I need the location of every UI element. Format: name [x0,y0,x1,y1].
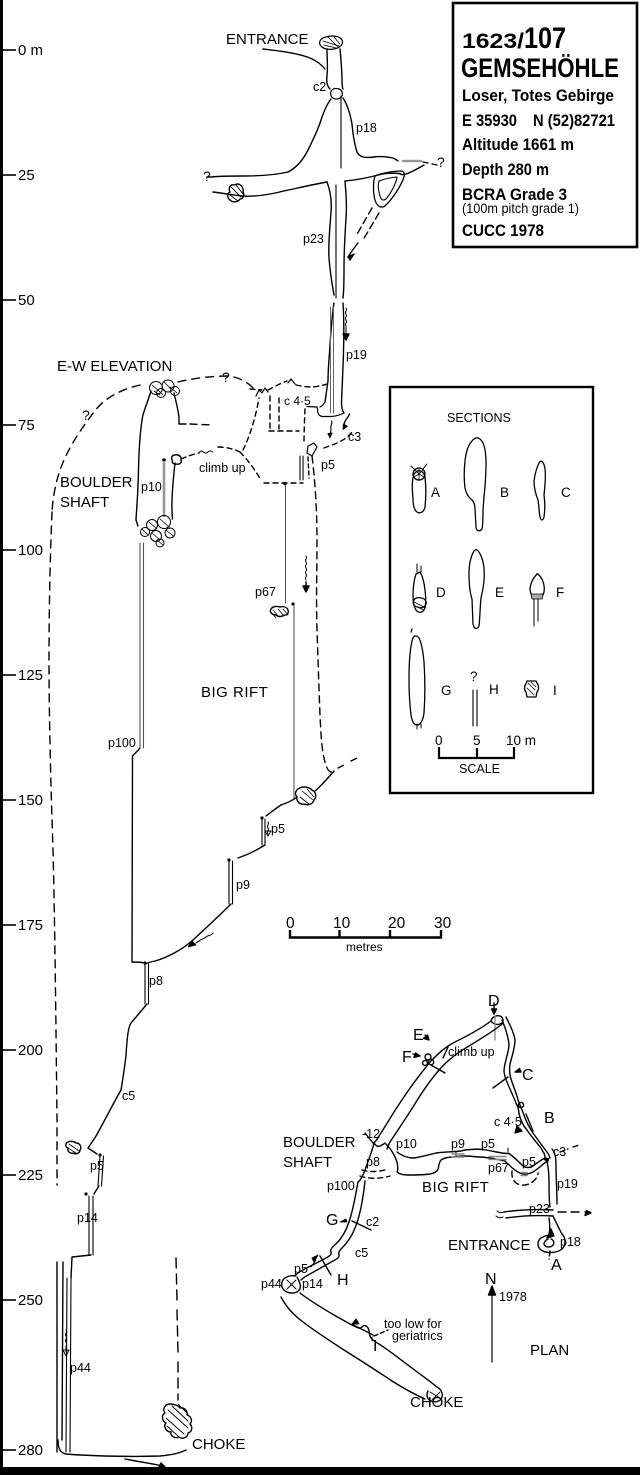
svg-text:p18: p18 [356,121,377,135]
svg-text:c 4·5: c 4·5 [284,394,311,408]
svg-text:p5: p5 [90,1159,104,1173]
svg-text:50: 50 [18,292,35,309]
svg-text:BOULDER: BOULDER [60,474,133,491]
svg-text:SCALE: SCALE [459,762,500,776]
svg-text:0 m: 0 m [18,42,43,59]
svg-text:C: C [561,485,571,500]
svg-text:F: F [556,585,564,600]
svg-text:p19: p19 [557,1177,578,1191]
svg-text:p100: p100 [327,1179,355,1193]
svg-text:100: 100 [18,542,43,559]
svg-text:D: D [436,585,446,600]
svg-text:?: ? [222,369,230,385]
svg-text:p10: p10 [396,1137,417,1151]
svg-text:BOULDER: BOULDER [283,1134,356,1151]
svg-text:GEMSEHÖHLE: GEMSEHÖHLE [461,53,619,83]
svg-text:B: B [500,485,509,500]
svg-text:p44: p44 [261,1277,282,1291]
svg-text:75: 75 [18,417,35,434]
svg-text:E: E [413,1027,424,1044]
svg-text:c5: c5 [355,1246,368,1260]
svg-text:SHAFT: SHAFT [283,1154,332,1171]
svg-text:p19: p19 [346,348,367,362]
svg-text:H: H [337,1272,349,1289]
svg-text:I: I [553,683,557,698]
svg-text:climb up: climb up [199,461,246,475]
svg-text:G: G [326,1212,338,1229]
svg-text:Loser, Totes Gebirge: Loser, Totes Gebirge [462,86,614,105]
svg-text:ENTRANCE: ENTRANCE [448,1237,531,1254]
svg-text:Altitude 1661 m: Altitude 1661 m [462,136,574,154]
svg-text:p44: p44 [70,1361,91,1375]
svg-text:?: ? [470,669,478,684]
svg-text:BIG RIFT: BIG RIFT [201,684,268,701]
svg-text:5: 5 [473,733,481,748]
svg-text:p67: p67 [255,585,276,599]
svg-text:C: C [522,1067,534,1084]
svg-text:c2: c2 [313,80,326,94]
svg-text:?: ? [203,168,211,184]
svg-text:107: 107 [524,22,566,55]
svg-text:A: A [431,485,440,500]
svg-text:SHAFT: SHAFT [60,494,109,511]
svg-text:?: ? [437,154,445,170]
svg-text:10 m: 10 m [506,733,536,748]
svg-text:125: 125 [18,667,43,684]
svg-text:(100m pitch grade 1): (100m pitch grade 1) [462,200,579,216]
svg-text:280: 280 [18,1442,43,1459]
svg-text:200: 200 [18,1042,43,1059]
svg-text:p14: p14 [302,1277,323,1291]
svg-text:N: N [485,1271,497,1288]
svg-text:p9: p9 [451,1137,465,1151]
svg-text:p5: p5 [321,458,335,472]
svg-text:?: ? [82,407,90,423]
svg-text:climb up: climb up [448,1045,495,1059]
svg-text:c3: c3 [348,430,361,444]
svg-text:H: H [489,682,499,697]
svg-text:10: 10 [333,915,351,932]
svg-text:CHOKE: CHOKE [410,1394,463,1411]
svg-text:SECTIONS: SECTIONS [447,411,511,425]
svg-text:BIG RIFT: BIG RIFT [422,1179,489,1196]
svg-text:25: 25 [18,167,35,184]
svg-text:p100: p100 [108,736,136,750]
svg-text:c2: c2 [366,1215,379,1229]
svg-text:p5: p5 [271,822,285,836]
svg-text:geriatrics: geriatrics [392,1329,443,1343]
svg-text:p14: p14 [77,1211,98,1225]
svg-text:PLAN: PLAN [530,1342,569,1359]
svg-text:F: F [402,1049,412,1066]
svg-text:225: 225 [18,1167,43,1184]
svg-text:p8: p8 [149,974,163,988]
svg-text:p67: p67 [488,1161,509,1175]
svg-text:B: B [544,1110,555,1127]
svg-text:p9: p9 [236,878,250,892]
svg-text:150: 150 [18,792,43,809]
svg-text:CHOKE: CHOKE [192,1436,245,1453]
svg-text:E-W ELEVATION: E-W ELEVATION [57,358,172,375]
svg-text:0: 0 [286,915,295,932]
svg-text:p10: p10 [141,480,162,494]
svg-text:CUCC 1978: CUCC 1978 [462,222,544,240]
svg-text:20: 20 [388,915,406,932]
svg-text:0: 0 [435,733,443,748]
svg-text:metres: metres [346,940,383,954]
svg-text:1978: 1978 [499,1290,527,1304]
svg-text:E: E [495,585,504,600]
svg-text:G: G [441,683,452,698]
svg-text:p23: p23 [303,232,324,246]
svg-text:175: 175 [18,917,43,934]
svg-text:E 35930: E 35930 [462,111,517,130]
svg-text:A: A [551,1257,562,1274]
svg-text:c5: c5 [122,1089,135,1103]
svg-text:ENTRANCE: ENTRANCE [226,31,309,48]
svg-text:30: 30 [434,915,452,932]
svg-text:N (52)82721: N (52)82721 [533,111,615,130]
svg-text:1623/: 1623/ [462,29,524,53]
svg-text:Depth 280 m: Depth 280 m [462,161,549,179]
svg-text:250: 250 [18,1292,43,1309]
